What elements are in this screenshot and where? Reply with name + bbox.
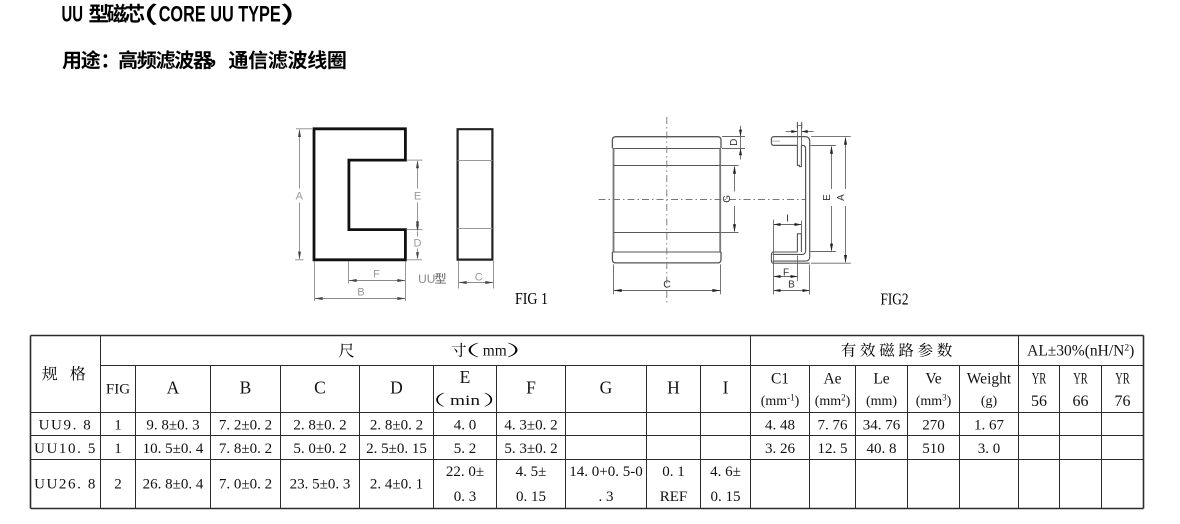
svg-text:UU9. 8: UU9. 8	[39, 417, 93, 433]
svg-text:0. 15: 0. 15	[516, 489, 546, 505]
svg-text:5. 3±0. 2: 5. 3±0. 2	[504, 441, 557, 457]
svg-text:2: 2	[114, 477, 122, 493]
svg-text:I: I	[786, 214, 789, 225]
svg-text:10. 5±0. 4: 10. 5±0. 4	[143, 441, 204, 457]
svg-text:AL±30%(nH/N2): AL±30%(nH/N2)	[1027, 343, 1134, 360]
svg-text:. 3: . 3	[599, 489, 614, 505]
svg-text:1: 1	[114, 441, 122, 457]
svg-text:CORE UU TYPE: CORE UU TYPE	[159, 2, 281, 27]
svg-text:1: 1	[114, 417, 122, 433]
svg-text:1. 67: 1. 67	[974, 417, 1005, 433]
svg-text:E: E	[414, 190, 421, 202]
svg-text:YR: YR	[1073, 370, 1088, 387]
svg-text:7. 8±0. 2: 7. 8±0. 2	[219, 441, 272, 457]
svg-text:4. 0: 4. 0	[454, 417, 477, 433]
svg-text:4. 5±: 4. 5±	[516, 464, 547, 480]
svg-text:0. 3: 0. 3	[454, 489, 477, 505]
svg-text:(mm-1): (mm-1)	[761, 393, 800, 410]
svg-text:FIG2: FIG2	[881, 290, 909, 309]
svg-text:A: A	[167, 377, 180, 397]
svg-text:Ve: Ve	[925, 370, 941, 387]
svg-text:7. 2±0. 2: 7. 2±0. 2	[219, 417, 272, 433]
svg-text:FIG: FIG	[106, 381, 130, 397]
svg-text:UU: UU	[62, 2, 84, 27]
svg-text:12. 5: 12. 5	[818, 441, 848, 457]
svg-text:23. 5±0. 3: 23. 5±0. 3	[290, 477, 351, 493]
svg-text:G: G	[600, 377, 613, 397]
svg-text:4. 48: 4. 48	[765, 417, 795, 433]
svg-text:34. 76: 34. 76	[863, 417, 901, 433]
svg-text:F: F	[783, 268, 789, 279]
svg-text:YR: YR	[1032, 370, 1047, 387]
svg-text:2. 8±0. 2: 2. 8±0. 2	[293, 417, 346, 433]
svg-text:E: E	[460, 367, 471, 387]
svg-text:(mm): (mm)	[866, 394, 897, 409]
svg-text:3. 0: 3. 0	[978, 441, 1001, 457]
svg-text:C: C	[475, 271, 483, 283]
svg-text:(g): (g)	[981, 394, 998, 409]
svg-text:C1: C1	[771, 370, 789, 387]
svg-text:mm: mm	[483, 342, 507, 359]
svg-text:76: 76	[1115, 393, 1131, 410]
svg-text:UU26. 8: UU26. 8	[34, 477, 97, 493]
svg-text:7. 0±0. 2: 7. 0±0. 2	[219, 477, 272, 493]
svg-text:min: min	[450, 393, 481, 409]
svg-text:H: H	[667, 377, 680, 397]
svg-text:Le: Le	[873, 370, 889, 387]
svg-text:D: D	[729, 139, 740, 146]
svg-text:9. 8±0. 3: 9. 8±0. 3	[146, 417, 199, 433]
svg-text:G: G	[722, 195, 733, 203]
svg-text:D: D	[390, 377, 403, 397]
svg-text:H: H	[796, 120, 803, 131]
svg-text:4. 6±: 4. 6±	[710, 464, 741, 480]
svg-text:A: A	[836, 194, 847, 201]
svg-text:UU10. 5: UU10. 5	[34, 441, 97, 457]
svg-text:A: A	[296, 190, 304, 202]
svg-text:40. 8: 40. 8	[867, 441, 897, 457]
svg-text:22. 0±: 22. 0±	[446, 464, 484, 480]
svg-text:REF: REF	[660, 489, 688, 505]
svg-text:2. 4±0. 1: 2. 4±0. 1	[370, 477, 423, 493]
svg-text:5. 2: 5. 2	[454, 441, 477, 457]
svg-text:3. 26: 3. 26	[765, 441, 796, 457]
svg-text:UU: UU	[418, 272, 435, 286]
svg-text:(mm3): (mm3)	[916, 393, 952, 410]
svg-text:5. 0±0. 2: 5. 0±0. 2	[293, 441, 346, 457]
svg-text:4. 3±0. 2: 4. 3±0. 2	[504, 417, 557, 433]
svg-text:0. 1: 0. 1	[662, 464, 685, 480]
svg-text:B: B	[357, 287, 364, 299]
svg-text:D: D	[414, 238, 422, 250]
svg-text:Weight: Weight	[967, 370, 1012, 387]
svg-text:C: C	[314, 377, 326, 397]
svg-text:14. 0+0. 5-0: 14. 0+0. 5-0	[569, 464, 642, 480]
svg-text:E: E	[822, 194, 833, 201]
svg-text:Ae: Ae	[823, 370, 841, 387]
svg-text:7. 76: 7. 76	[818, 417, 849, 433]
svg-text:(mm2): (mm2)	[815, 393, 851, 410]
svg-text:C: C	[663, 279, 671, 291]
svg-text:270: 270	[922, 417, 945, 433]
svg-text:66: 66	[1073, 393, 1089, 410]
svg-text:0. 15: 0. 15	[711, 489, 741, 505]
svg-text:B: B	[788, 280, 795, 291]
svg-text:2. 8±0. 2: 2. 8±0. 2	[370, 417, 423, 433]
svg-text:26. 8±0. 4: 26. 8±0. 4	[143, 477, 204, 493]
svg-text:56: 56	[1031, 393, 1047, 410]
svg-text:F: F	[373, 269, 380, 281]
svg-text:F: F	[526, 377, 536, 397]
svg-text:YR: YR	[1115, 370, 1130, 387]
svg-text:B: B	[240, 377, 252, 397]
svg-text:I: I	[723, 377, 729, 397]
svg-text:FIG 1: FIG 1	[515, 289, 548, 308]
svg-text:2. 5±0. 15: 2. 5±0. 15	[366, 441, 427, 457]
svg-text:510: 510	[922, 441, 945, 457]
